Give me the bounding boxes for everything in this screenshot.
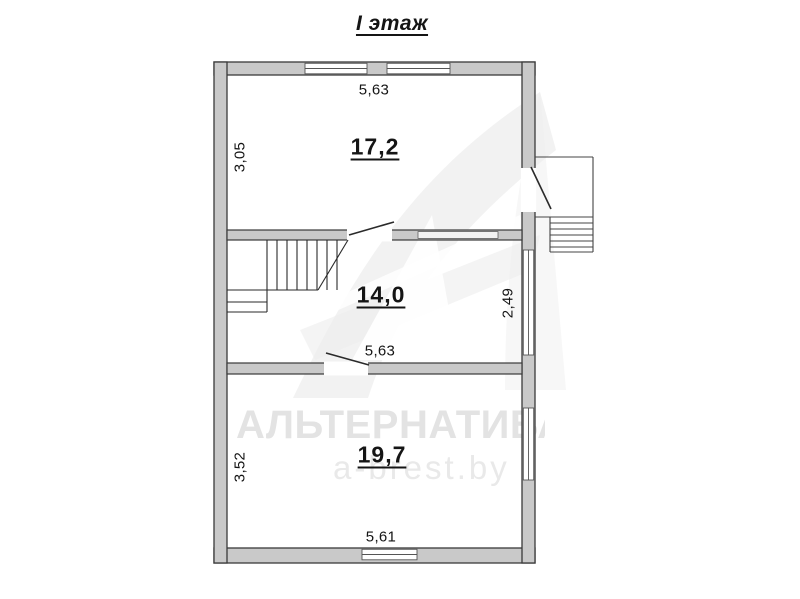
room-area-label-top: 17,2: [351, 134, 400, 161]
dimension-top-width: 5,63: [359, 82, 389, 99]
entrance-porch: [535, 157, 593, 252]
floor-plan-page: АЛЬТЕРНАТИВА a-brest.by: [0, 0, 800, 599]
door-opening-upper-wall: [347, 229, 392, 242]
dimension-top-left-height: 3,05: [232, 142, 249, 172]
dimension-bottom-width: 5,61: [366, 529, 396, 546]
door-leaves: [326, 167, 551, 365]
stairs-break-line: [318, 240, 348, 290]
stairs: [227, 240, 348, 312]
dimension-middle-right-height: 2,49: [500, 288, 517, 318]
interior-wall-lower: [227, 363, 522, 374]
room-area-label-middle: 14,0: [357, 282, 406, 309]
page-title: I этаж: [356, 12, 428, 36]
top-wall: [214, 62, 535, 75]
dimension-middle-width: 5,63: [365, 343, 395, 360]
porch-steps: [550, 223, 593, 247]
door-openings: [324, 168, 536, 375]
room-area-label-bottom: 19,7: [358, 442, 407, 469]
pass-through-window-interior-wall: [418, 232, 498, 239]
left-wall: [214, 62, 227, 563]
dimension-bottom-left-height: 3,52: [232, 452, 249, 482]
